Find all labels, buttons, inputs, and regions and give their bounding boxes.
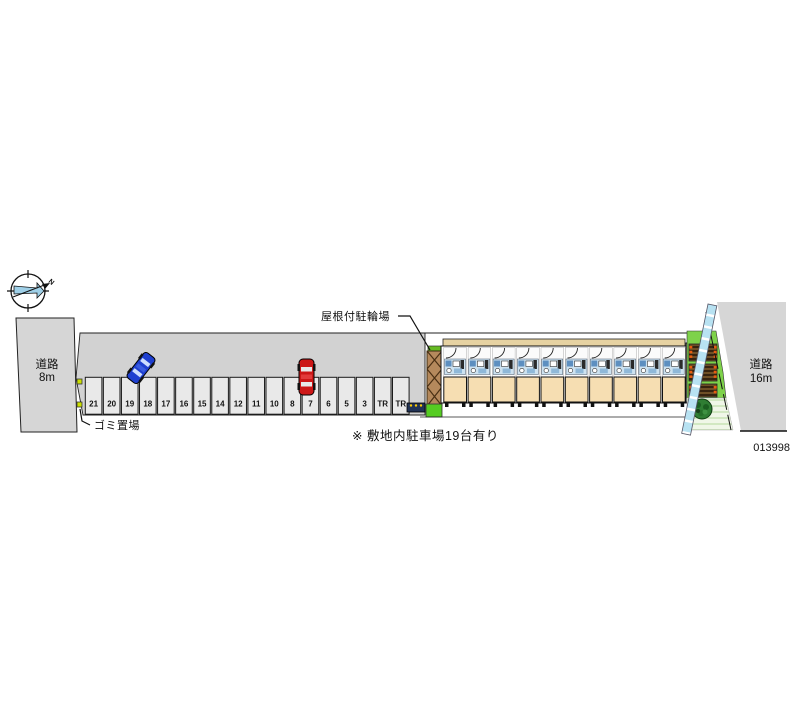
stall-number: 17 xyxy=(161,400,170,409)
apartment-building xyxy=(420,333,699,417)
parking-stall: 11 xyxy=(248,377,265,414)
parking-count-note: ※ 敷地内駐車場19台有り xyxy=(352,428,499,443)
bicycle-shed xyxy=(426,346,443,417)
stall-number: 7 xyxy=(308,400,313,409)
parking-stall: 17 xyxy=(158,377,175,414)
building-unit xyxy=(444,348,467,408)
stall-number: 3 xyxy=(362,400,367,409)
parking-stall: 5 xyxy=(338,377,355,414)
left-road-width: 8m xyxy=(39,372,55,384)
stall-number: 6 xyxy=(326,400,331,409)
stall-number: 11 xyxy=(252,400,261,409)
parking-stall: 6 xyxy=(320,377,337,414)
compass-icon: N xyxy=(7,270,55,312)
stall-number: 21 xyxy=(89,400,98,409)
parking-stall: 3 xyxy=(356,377,373,414)
stall-number: 12 xyxy=(234,400,243,409)
parking-stall: 10 xyxy=(266,377,283,414)
garbage-marker xyxy=(77,402,82,407)
building-eave xyxy=(443,339,685,346)
building-unit xyxy=(468,348,491,408)
right-road-label: 道路 xyxy=(750,357,773,371)
parking-stall: 15 xyxy=(194,377,211,414)
stall-number: 8 xyxy=(290,400,295,409)
stall-number: 20 xyxy=(107,400,116,409)
motorbike-spot xyxy=(407,403,425,412)
building-unit xyxy=(541,348,564,408)
stall-number: 19 xyxy=(125,400,134,409)
stall-number: 5 xyxy=(344,400,349,409)
parking-stall: 8 xyxy=(284,377,301,414)
building-unit xyxy=(638,348,661,408)
building-unit xyxy=(565,348,588,408)
garbage-marker xyxy=(77,379,82,384)
stall-number: TR xyxy=(377,400,388,409)
parking-stall: 14 xyxy=(212,377,229,414)
site-plan-canvas: 道路 8m 212019181716151412111087653TRTR xyxy=(0,0,800,727)
right-road-width: 16m xyxy=(750,373,772,385)
parking-stall: 18 xyxy=(140,377,157,414)
left-road: 道路 8m xyxy=(16,318,77,432)
covered-bicycle-parking-label: 屋根付駐輪場 xyxy=(321,309,390,323)
plan-id: 013998 xyxy=(753,442,790,454)
compass-north-label: N xyxy=(47,278,55,287)
garbage-area-label: ゴミ置場 xyxy=(94,418,140,432)
stall-number: TR xyxy=(395,400,406,409)
stall-number: 14 xyxy=(216,400,225,409)
parking-stall: 21 xyxy=(85,377,102,414)
stall-number: 15 xyxy=(198,400,207,409)
building-unit xyxy=(614,348,637,408)
red-car-icon xyxy=(298,359,316,395)
stall-number: 16 xyxy=(179,400,188,409)
site-plan-drawing: 道路 8m 212019181716151412111087653TRTR xyxy=(0,0,800,727)
building-unit xyxy=(517,348,540,408)
stall-number: 10 xyxy=(270,400,279,409)
stall-number: 18 xyxy=(143,400,152,409)
building-unit xyxy=(590,348,613,408)
left-road-label: 道路 xyxy=(36,357,59,371)
parking-stall: 20 xyxy=(103,377,120,414)
building-unit xyxy=(492,348,515,408)
building-unit xyxy=(663,348,686,408)
parking-stall: 12 xyxy=(230,377,247,414)
parking-stall: 16 xyxy=(176,377,193,414)
parking-stall: TR xyxy=(374,377,391,414)
